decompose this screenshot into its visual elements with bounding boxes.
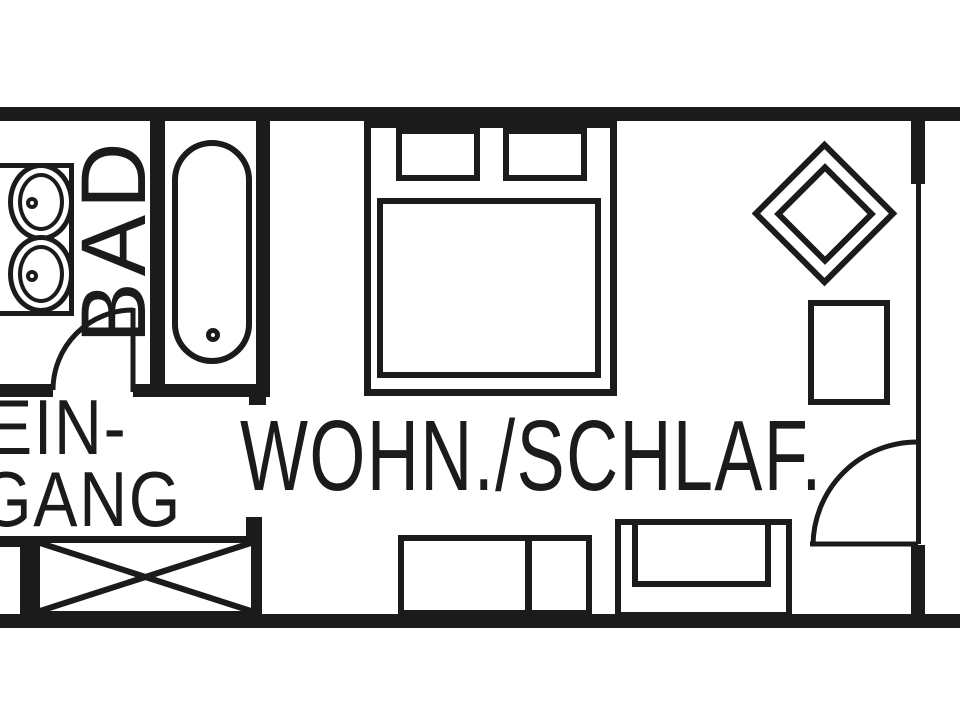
main-door-arc [813,442,917,546]
mattress [377,198,601,378]
room-label-bathroom: BAD [68,125,164,355]
pillow-left [396,128,480,181]
wall-right-top-stub [911,121,925,184]
room-label-living-sleeping: WOHN./SCHLAF. [240,406,823,506]
floorplan-canvas: BAD EIN- GANG WOHN./SCHLAF. [0,0,960,720]
sink-faucet-dot-bottom [26,270,38,282]
bathtub-drain-dot [206,328,220,342]
bench-table [398,535,592,616]
wall-right-bottom-stub [911,545,925,628]
side-table [808,300,890,405]
pillow-right [503,128,587,181]
wall-tub-right [256,118,270,396]
wardrobe-crossed [33,536,258,618]
wall-entry-left-vertical [20,536,33,628]
bench-divider [525,535,532,616]
wall-top [0,107,960,121]
sofa-seat-inner [632,519,771,587]
sink-faucet-dot-top [26,197,38,209]
wall-right-thin [916,184,921,544]
sink-basin-inner-bottom [18,245,64,303]
sink-basin-inner-top [18,173,64,231]
room-label-entrance-line2: GANG [0,460,182,538]
